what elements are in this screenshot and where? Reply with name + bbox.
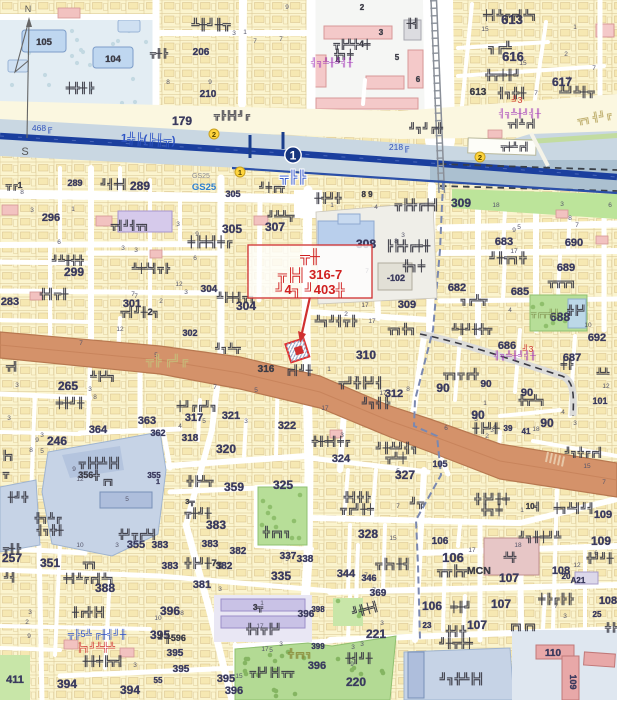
svg-text:396: 396	[308, 660, 326, 672]
svg-text:2: 2	[360, 3, 365, 12]
svg-text:7: 7	[592, 65, 596, 72]
svg-text:396: 396	[160, 604, 180, 618]
svg-text:3: 3	[360, 641, 364, 648]
svg-text:613: 613	[470, 87, 487, 98]
svg-text:17: 17	[321, 405, 329, 412]
svg-text:╗╔╩: ╗╔╩	[487, 40, 512, 55]
svg-text:335: 335	[271, 569, 291, 583]
svg-text:359: 359	[224, 480, 244, 494]
svg-text:7: 7	[602, 479, 606, 486]
svg-text:107: 107	[491, 597, 511, 611]
svg-text:17: 17	[361, 302, 369, 309]
svg-text:3: 3	[176, 221, 180, 228]
svg-text:4: 4	[561, 409, 565, 416]
svg-text:296: 296	[42, 212, 60, 224]
svg-text:3╦: 3╦	[253, 603, 263, 613]
svg-text:3: 3	[88, 386, 92, 393]
svg-text:╫╬╝╬: ╫╬╝╬	[314, 192, 342, 204]
svg-text:╗╔╩╦: ╗╔╩╦	[460, 294, 488, 306]
svg-text:25: 25	[593, 610, 602, 619]
svg-text:221: 221	[366, 627, 386, 641]
svg-text:GS25: GS25	[192, 173, 210, 180]
svg-text:╪╣╩╔╔╣╩╗: ╪╣╩╔╔╣╩╗	[62, 572, 114, 584]
svg-text:327: 327	[395, 468, 415, 482]
svg-text:╫╠╝╫: ╫╠╝╫	[472, 422, 500, 434]
svg-text:7: 7	[396, 503, 400, 510]
svg-text:9: 9	[208, 79, 212, 86]
svg-text:2: 2	[25, 619, 29, 626]
svg-text:299: 299	[64, 265, 84, 279]
svg-text:39: 39	[504, 424, 513, 433]
svg-text:105: 105	[432, 459, 447, 469]
svg-text:17: 17	[468, 547, 476, 554]
svg-text:383: 383	[206, 518, 226, 532]
svg-text:╝╗╬╔╔╣: ╝╗╬╔╔╣	[564, 446, 603, 458]
svg-text:324: 324	[332, 453, 351, 465]
svg-text:683: 683	[495, 236, 513, 248]
svg-text:╬╦╩╗: ╬╦╩╗	[518, 394, 546, 406]
svg-text:7: 7	[534, 90, 538, 97]
svg-text:9: 9	[285, 4, 289, 11]
svg-text:╪╣╩╔╔╣╩╗: ╪╣╩╔╔╣╩╗	[482, 9, 537, 21]
svg-text:╦╠╠: ╦╠╠	[279, 169, 307, 185]
svg-text:GS25: GS25	[192, 182, 217, 193]
svg-text:╦╠╬╩╠╣: ╦╠╬╩╠╣	[78, 456, 122, 470]
svg-text:9: 9	[27, 633, 31, 640]
svg-text:╫╣: ╫╣	[406, 17, 420, 29]
svg-text:310: 310	[356, 348, 376, 362]
svg-text:8: 8	[180, 610, 184, 617]
svg-text:692: 692	[588, 332, 606, 344]
svg-text:╬╗╪: ╬╗╪	[480, 503, 503, 517]
svg-text:41: 41	[522, 427, 531, 436]
svg-text:344: 344	[337, 568, 356, 580]
svg-text:23: 23	[423, 621, 432, 630]
svg-text:8: 8	[166, 79, 170, 86]
svg-text:383: 383	[202, 539, 219, 550]
svg-text:10╣: 10╣	[526, 501, 541, 512]
svg-text:309: 309	[451, 196, 471, 210]
svg-text:18: 18	[532, 426, 540, 433]
svg-text:3: 3	[401, 232, 405, 239]
svg-text:363: 363	[138, 415, 156, 427]
svg-text:╠╗: ╠╗	[2, 449, 15, 461]
svg-text:3: 3	[40, 432, 44, 439]
svg-text:╝╗╬╩╠╣: ╝╗╬╩╠╣	[439, 672, 485, 686]
svg-text:╝3: ╝3	[522, 344, 534, 354]
svg-text:322: 322	[278, 420, 296, 432]
svg-text:2: 2	[564, 51, 568, 58]
svg-text:7: 7	[213, 384, 217, 391]
svg-text:╦╗: ╦╗	[82, 558, 97, 569]
svg-text:╦╠ ╔╝╔: ╦╠ ╔╝╔	[145, 353, 188, 368]
svg-text:1: 1	[238, 168, 242, 177]
svg-text:╩╠╩╗: ╩╠╩╗	[89, 370, 116, 382]
svg-text:╫╫╪╠╦╣: ╫╫╪╠╦╣	[82, 655, 123, 667]
svg-text:309: 309	[398, 299, 416, 311]
svg-text:╬╗╪: ╬╗╪	[402, 259, 426, 273]
svg-text:╝╫596: ╝╫596	[157, 632, 186, 644]
svg-text:3: 3	[15, 382, 19, 389]
svg-text:╬╣╦╫: ╬╣╦╫	[39, 287, 69, 301]
svg-text:289: 289	[130, 179, 150, 193]
svg-text:105: 105	[36, 37, 53, 48]
svg-text:1: 1	[327, 366, 331, 373]
svg-text:17: 17	[368, 318, 376, 325]
svg-text:╩╩: ╩╩	[596, 367, 610, 378]
svg-text:7: 7	[79, 340, 83, 347]
svg-text:╬╫╪╣╪╔: ╬╫╪╣╪╔	[311, 435, 351, 447]
svg-text:S: S	[21, 146, 28, 158]
svg-text:101: 101	[592, 396, 607, 406]
svg-text:399: 399	[311, 642, 325, 651]
svg-text:1: 1	[483, 400, 487, 407]
svg-text:3: 3	[279, 641, 283, 648]
svg-text:╪╠╔╠╠: ╪╠╔╠╠	[537, 592, 574, 606]
svg-text:╦╫╝╫: ╦╫╝╫	[184, 507, 212, 519]
svg-text:╦╫╠: ╦╫╠	[149, 48, 169, 59]
svg-text:1: 1	[156, 479, 160, 486]
svg-text:╫╣╝╫: ╫╣╝╫	[345, 652, 373, 664]
svg-text:3: 3	[133, 662, 137, 669]
svg-text:106: 106	[422, 599, 442, 613]
svg-text:-102: -102	[387, 273, 405, 283]
svg-text:8: 8	[20, 189, 24, 196]
svg-text:90: 90	[540, 416, 554, 430]
svg-text:╬╝╝╫: ╬╝╝╫	[586, 552, 614, 564]
svg-text:4: 4	[374, 204, 378, 211]
svg-text:╝╩╩╦: ╝╩╩╦	[267, 210, 295, 222]
svg-text:3: 3	[563, 613, 567, 620]
svg-text:328: 328	[358, 527, 378, 541]
svg-text:╝╣╪╣: ╝╣╪╣	[100, 178, 128, 190]
svg-text:5: 5	[269, 647, 273, 654]
svg-text:218╔: 218╔	[389, 142, 410, 153]
svg-text:╦╠╠╣╝╔: ╦╠╠╣╝╔	[213, 110, 251, 121]
svg-text:369: 369	[370, 588, 387, 599]
svg-text:╦╔1: ╦╔1	[5, 180, 23, 191]
svg-text:3: 3	[121, 245, 125, 252]
svg-text:682: 682	[448, 282, 466, 294]
svg-text:╣╗╬╫: ╣╗╬╫	[36, 524, 64, 536]
svg-text:╝╗╩╦: ╝╗╩╦	[214, 342, 241, 354]
svg-text:╩╫╝╫╬╦: ╩╫╝╫╬╦	[451, 323, 493, 335]
svg-text:╝╗╣╠: ╝╗╣╠	[361, 396, 391, 410]
svg-text:3: 3	[380, 620, 384, 627]
svg-text:356╬: 356╬	[78, 469, 100, 481]
svg-text:╬╗╩╔: ╬╗╩╔	[34, 512, 62, 524]
svg-text:7: 7	[131, 291, 135, 298]
svg-text:╩╝╩╫╦: ╩╝╩╫╦	[558, 85, 595, 99]
svg-text:3: 3	[184, 289, 188, 296]
svg-text:362: 362	[150, 428, 165, 438]
svg-text:╦╦╠╦MCN: ╦╦╠╦MCN	[436, 564, 491, 578]
svg-text:╩╗╝╣╦╠: ╩╗╝╣╦╠	[314, 314, 358, 328]
svg-text:7: 7	[253, 38, 257, 45]
svg-text:15: 15	[583, 463, 591, 470]
svg-text:╦╗╬╗: ╦╗╬╗	[387, 322, 416, 335]
svg-text:4: 4	[508, 307, 512, 314]
svg-text:107: 107	[467, 618, 487, 632]
svg-text:3╦: 3╦	[185, 497, 195, 507]
svg-text:╦╣╝╣╦╗: ╦╣╝╣╦╗	[110, 219, 149, 231]
svg-text:383: 383	[152, 540, 169, 551]
svg-text:╠╗╝╩╬╩: ╠╗╝╩╬╩	[77, 641, 116, 653]
svg-text:206: 206	[193, 47, 210, 58]
svg-text:╔╣╝╫: ╔╣╝╫	[286, 364, 313, 376]
svg-text:╦╩╪: ╦╩╪	[384, 451, 407, 465]
svg-text:╬╝╦╔╩╣: ╬╝╦╔╩╣	[118, 528, 157, 540]
svg-text:╦: ╦	[2, 468, 10, 479]
svg-text:220: 220	[346, 675, 366, 689]
svg-text:7: 7	[575, 222, 579, 229]
svg-text:317: 317	[185, 412, 203, 424]
svg-text:289: 289	[67, 178, 82, 188]
svg-text:╬╠╝╫╪: ╬╠╝╫╪	[473, 492, 510, 506]
svg-text:3: 3	[218, 586, 222, 593]
svg-text:346: 346	[361, 573, 376, 583]
svg-text:A21: A21	[571, 576, 586, 585]
svg-text:355: 355	[127, 539, 145, 551]
svg-text:18: 18	[514, 542, 522, 549]
svg-text:╪╫╝╫: ╪╫╝╫	[55, 396, 85, 410]
svg-text:3: 3	[379, 28, 384, 37]
svg-text:351: 351	[40, 556, 60, 570]
svg-text:8: 8	[93, 394, 97, 401]
svg-text:9: 9	[72, 466, 76, 473]
svg-text:90: 90	[471, 408, 485, 422]
svg-text:3: 3	[560, 201, 564, 208]
svg-text:3: 3	[351, 644, 355, 651]
svg-text:2: 2	[212, 130, 216, 139]
svg-text:5: 5	[395, 53, 400, 62]
svg-text:10: 10	[584, 322, 592, 329]
svg-text:411: 411	[6, 674, 24, 686]
svg-text:90: 90	[436, 381, 450, 395]
svg-text:8 9: 8 9	[361, 190, 373, 199]
svg-text:╝╩╫╬╬: ╝╩╫╬╬	[51, 254, 85, 266]
svg-text:╦╠5╩ ╔╫╣╝╫: ╦╠5╩ ╔╫╣╝╫	[67, 628, 127, 640]
svg-text:302: 302	[182, 328, 197, 338]
svg-text:3: 3	[115, 542, 119, 549]
svg-text:╬╠╝: ╬╠╝	[566, 304, 586, 316]
svg-text:6: 6	[444, 425, 448, 432]
svg-text:6: 6	[416, 75, 421, 84]
svg-text:9: 9	[512, 227, 516, 234]
svg-text:7: 7	[279, 36, 283, 43]
svg-text:10: 10	[76, 542, 84, 549]
svg-text:394: 394	[57, 677, 77, 691]
svg-text:N: N	[25, 4, 32, 14]
svg-text:307: 307	[265, 220, 285, 234]
svg-text:18: 18	[492, 202, 500, 209]
svg-text:6: 6	[608, 202, 612, 209]
svg-text:╬╠╝╫7╗: ╬╠╝╫7╗	[184, 557, 224, 569]
svg-text:5: 5	[254, 387, 258, 394]
svg-text:337: 337	[280, 551, 297, 562]
svg-text:╦╔╝╫╪: ╦╔╝╫╪	[339, 503, 374, 515]
svg-text:2: 2	[485, 433, 489, 440]
svg-text:╠╠╬╔╪╫: ╠╠╬╔╪╫	[386, 239, 431, 253]
svg-text:6: 6	[57, 239, 61, 246]
svg-text:12: 12	[175, 281, 183, 288]
svg-text:55: 55	[154, 676, 163, 685]
svg-text:╝4╗ ╝403╬: ╝4╗ ╝403╬	[274, 281, 345, 299]
svg-text:╬╠╩╦: ╬╠╩╦	[186, 475, 214, 487]
svg-text:382: 382	[230, 546, 247, 557]
svg-text:5: 5	[517, 224, 521, 231]
svg-text:320: 320	[216, 442, 236, 456]
svg-text:15: 15	[389, 535, 397, 542]
svg-text:265: 265	[58, 379, 78, 393]
svg-text:╬╔╗╗: ╬╔╗╗	[262, 525, 291, 538]
svg-text:12: 12	[116, 326, 124, 333]
svg-text:257: 257	[2, 551, 22, 565]
svg-text:╬╔╗╗: ╬╔╗╗	[287, 648, 312, 659]
svg-text:4: 4	[178, 423, 182, 430]
svg-text:110: 110	[545, 648, 562, 659]
svg-text:396: 396	[225, 685, 243, 697]
svg-text:╬╠: ╬╠	[604, 622, 617, 633]
svg-text:╦╝╬╠╝╣: ╦╝╬╠╝╣	[338, 376, 384, 390]
svg-text:╝╦: ╝╦	[409, 496, 425, 509]
svg-text:388: 388	[95, 581, 115, 595]
svg-text:2: 2	[159, 298, 163, 305]
svg-text:395: 395	[167, 648, 184, 659]
svg-text:8: 8	[29, 447, 33, 454]
svg-text:12: 12	[602, 383, 610, 390]
svg-text:╦╠╬╔╪╣: ╦╠╬╔╪╣	[394, 198, 440, 212]
svg-text:3: 3	[7, 415, 11, 422]
svg-text:5: 5	[125, 496, 129, 503]
svg-text:╬╗╦╠╝: ╬╗╦╠╝	[245, 622, 281, 636]
svg-text:90: 90	[480, 379, 492, 390]
svg-text:╦╠╝╠╣╦╦: ╦╠╝╠╣╦╦	[249, 666, 295, 678]
svg-text:12: 12	[573, 562, 581, 569]
svg-text:5: 5	[40, 448, 44, 455]
svg-text:╦╪╩╔╣: ╦╪╩╔╣	[500, 141, 529, 152]
svg-text:3: 3	[30, 207, 34, 214]
svg-text:╝╗╝╔╬: ╝╗╝╔╬	[408, 122, 443, 134]
svg-text:109: 109	[568, 674, 578, 689]
svg-text:╬╣╬: ╬╣╬	[445, 625, 466, 637]
svg-text:1: 1	[71, 206, 75, 213]
svg-text:210: 210	[200, 89, 217, 100]
svg-text:246: 246	[47, 434, 67, 448]
svg-text:3: 3	[244, 418, 248, 425]
svg-text:1: 1	[573, 24, 577, 31]
svg-text:╩╪╩╣╦╠: ╩╪╩╣╦╠	[131, 262, 171, 274]
svg-text:106: 106	[432, 536, 449, 547]
svg-text:╪╠╪╣╪╔: ╪╠╪╣╪╔	[187, 235, 233, 249]
svg-text:╦╗╦╔╬: ╦╗╦╔╬	[442, 367, 479, 380]
svg-text:8: 8	[568, 215, 572, 222]
svg-text:304: 304	[201, 284, 218, 295]
svg-text:15: 15	[235, 673, 243, 680]
svg-text:106: 106	[442, 550, 464, 565]
svg-text:╦╫╠: ╦╫╠	[2, 543, 22, 554]
svg-text:╦╣╝╫2╗: ╦╣╝╫2╗	[120, 306, 160, 318]
svg-text:398: 398	[311, 605, 325, 614]
svg-text:1: 1	[520, 507, 524, 514]
svg-text:2: 2	[478, 153, 482, 162]
svg-text:╪╗╩╣╝╣: ╪╗╩╣╝╣	[553, 502, 594, 514]
svg-text:╪╝╔╔╝╗: ╪╝╔╔╝╗	[176, 400, 217, 412]
svg-text:╦╣: ╦╣	[5, 361, 18, 372]
svg-text:╝╫╦╗╬: ╝╫╦╗╬	[488, 251, 527, 265]
svg-text:╪╠: ╪╠	[560, 358, 574, 370]
svg-text:321: 321	[222, 410, 240, 422]
svg-text:╔╗: ╔╗	[102, 475, 115, 486]
svg-text:383: 383	[162, 561, 179, 572]
svg-text:394: 394	[120, 683, 140, 697]
svg-text:3: 3	[134, 247, 138, 254]
svg-text:395: 395	[217, 673, 235, 685]
svg-text:109: 109	[591, 534, 611, 548]
svg-text:╝3: ╝3	[511, 95, 523, 105]
svg-text:20: 20	[562, 572, 571, 581]
svg-text:325: 325	[273, 478, 293, 492]
svg-text:689: 689	[557, 262, 575, 274]
svg-text:338: 338	[297, 554, 314, 565]
svg-text:╝╗╫╪╝╩: ╝╗╫╪╝╩	[518, 530, 562, 544]
svg-text:17: 17	[261, 646, 269, 653]
svg-text:179: 179	[172, 114, 192, 128]
svg-text:318: 318	[182, 433, 199, 444]
svg-text:316: 316	[258, 364, 275, 375]
svg-text:╫╝╬: ╫╝╬	[7, 491, 28, 503]
svg-text:9: 9	[35, 437, 39, 444]
svg-text:468╔: 468╔	[32, 123, 53, 134]
svg-text:╣╗╩╫╝╣╫: ╣╗╩╫╝╣╫	[498, 108, 542, 119]
svg-text:╦╣╩╔╣: ╦╣╩╔╣	[507, 118, 536, 129]
svg-text:╬╦╪╫╝: ╬╦╪╫╝	[484, 68, 520, 82]
svg-text:╪╬╫╠: ╪╬╫╠	[65, 81, 95, 95]
svg-text:305: 305	[225, 189, 240, 199]
svg-text:395: 395	[173, 664, 190, 675]
svg-text:3: 3	[28, 609, 32, 616]
svg-text:╔╗╔╗: ╔╗╔╗	[509, 620, 537, 631]
svg-text:690: 690	[565, 237, 583, 249]
svg-text:╦╦╦╗: ╦╦╦╗	[547, 277, 576, 288]
svg-text:364: 364	[89, 424, 108, 436]
svg-text:685: 685	[511, 286, 529, 298]
svg-text:15: 15	[481, 26, 489, 33]
svg-text:109: 109	[594, 509, 612, 521]
svg-text:╩╫╝╫╦: ╩╫╝╫╦	[191, 17, 231, 32]
svg-text:╣╗╩╫╝╣╫: ╣╗╩╫╝╣╫	[310, 57, 354, 68]
svg-text:104: 104	[105, 54, 122, 65]
svg-text:╦╔╦╬╬: ╦╔╦╬╬	[530, 308, 560, 319]
svg-text:╪╫╝: ╪╫╝	[449, 600, 471, 614]
svg-text:╝╣: ╝╣	[3, 572, 16, 583]
svg-text:1: 1	[243, 29, 247, 36]
svg-text:8: 8	[406, 386, 410, 393]
svg-text:╝╫╦╬╪: ╝╫╦╬╪	[438, 637, 473, 649]
svg-text:3: 3	[232, 30, 236, 37]
svg-text:381: 381	[193, 579, 211, 591]
svg-text:6: 6	[193, 255, 197, 262]
svg-text:108: 108	[599, 595, 617, 607]
svg-text:3: 3	[573, 420, 577, 427]
svg-text:╦╫: ╦╫	[299, 248, 320, 266]
svg-text:305: 305	[222, 222, 242, 236]
svg-text:╫╔╬╠╣: ╫╔╬╠╣	[71, 606, 106, 618]
svg-text:1: 1	[290, 149, 297, 163]
svg-text:╩╬: ╩╬	[503, 551, 517, 563]
svg-text:107: 107	[499, 571, 519, 585]
svg-text:╬╣╬╠: ╬╣╬╠	[343, 491, 371, 503]
